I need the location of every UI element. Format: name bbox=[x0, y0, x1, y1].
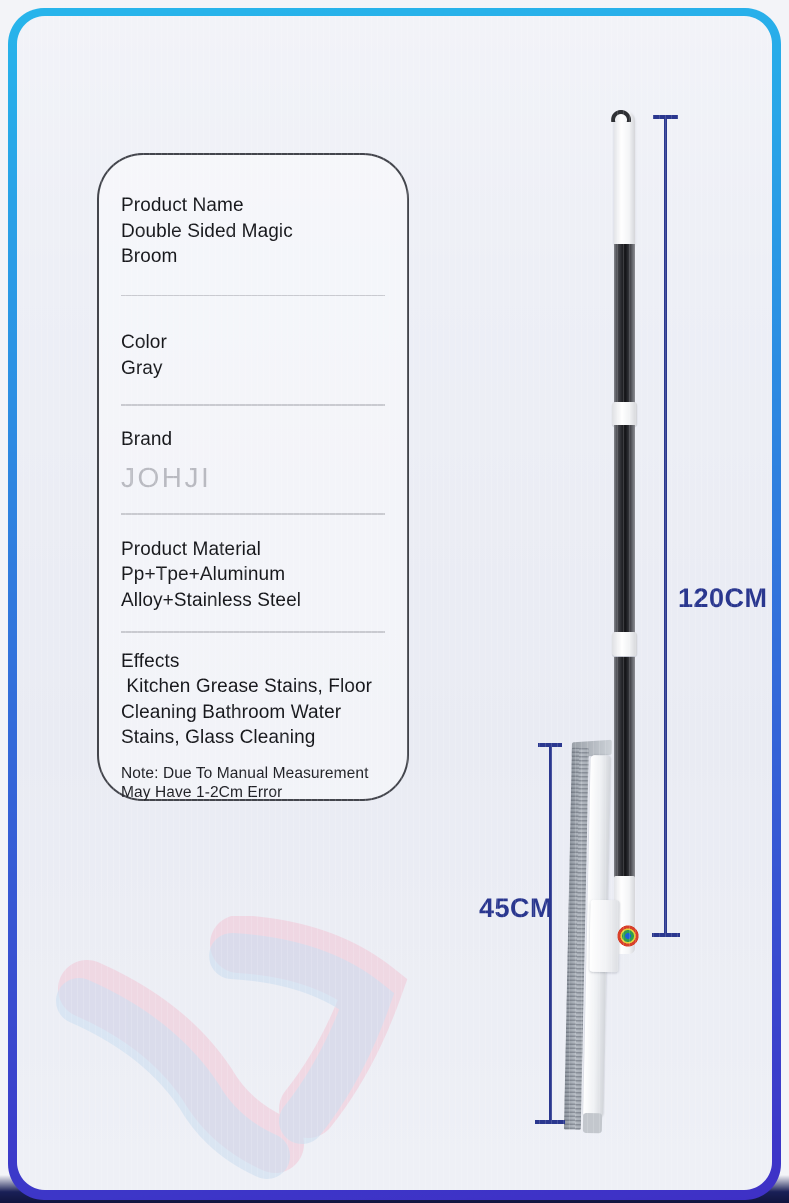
gradient-frame-border: Product Name Double Sided Magic Broom Co… bbox=[8, 8, 781, 1200]
spec-label: Product Name bbox=[121, 193, 385, 219]
spec-value: Double Sided Magic Broom bbox=[121, 219, 385, 270]
divider bbox=[121, 513, 385, 515]
divider bbox=[121, 631, 385, 633]
broom-handle bbox=[614, 111, 635, 245]
spec-label: Brand bbox=[121, 427, 385, 453]
spec-value: Pp+Tpe+Aluminum Alloy+Stainless Steel bbox=[121, 562, 385, 613]
spec-section-material: Product Material Pp+Tpe+Aluminum Alloy+S… bbox=[121, 537, 385, 614]
measure-120-line bbox=[664, 117, 667, 935]
broom-pole-segment bbox=[614, 657, 635, 878]
measure-45-bottom-cap bbox=[535, 1120, 565, 1124]
squeegee-panel-tip bbox=[583, 1113, 602, 1133]
spec-label: Effects bbox=[121, 649, 385, 675]
pole-connector bbox=[612, 402, 637, 426]
spec-value: Gray bbox=[121, 356, 385, 382]
content-area: Product Name Double Sided Magic Broom Co… bbox=[17, 16, 772, 1190]
spec-section-brand: Brand JOHJI bbox=[121, 427, 385, 497]
head-pivot-bracket bbox=[589, 900, 619, 972]
hanging-hook-hole bbox=[611, 109, 631, 122]
spec-section-color: Color Gray bbox=[121, 330, 385, 381]
divider bbox=[121, 404, 385, 406]
rainbow-lock-button bbox=[617, 925, 639, 947]
spec-value: Kitchen Grease Stains, Floor Cleaning Ba… bbox=[121, 674, 385, 751]
pole-connector bbox=[612, 632, 637, 656]
measure-120-label: 120CM bbox=[678, 582, 768, 614]
spec-section-effects: Effects Kitchen Grease Stains, Floor Cle… bbox=[121, 649, 385, 751]
broom-pole-segment bbox=[614, 244, 635, 404]
product-infographic: Product Name Double Sided Magic Broom Co… bbox=[0, 0, 789, 1203]
measure-45-label: 45CM bbox=[479, 892, 545, 924]
spec-label: Product Material bbox=[121, 537, 385, 563]
decorative-swirls bbox=[17, 916, 467, 1190]
broom-pole-segment bbox=[614, 425, 635, 633]
hook-ring bbox=[611, 110, 631, 122]
spec-card: Product Name Double Sided Magic Broom Co… bbox=[97, 153, 409, 801]
measure-45-line bbox=[549, 745, 552, 1122]
note-text: Note: Due To Manual Measurement May Have… bbox=[121, 764, 385, 802]
divider bbox=[121, 295, 385, 297]
spec-label: Color bbox=[121, 330, 385, 356]
brand-text: JOHJI bbox=[121, 460, 385, 496]
spec-section-product-name: Product Name Double Sided Magic Broom bbox=[121, 193, 385, 270]
measure-120-bottom-cap bbox=[652, 933, 680, 937]
